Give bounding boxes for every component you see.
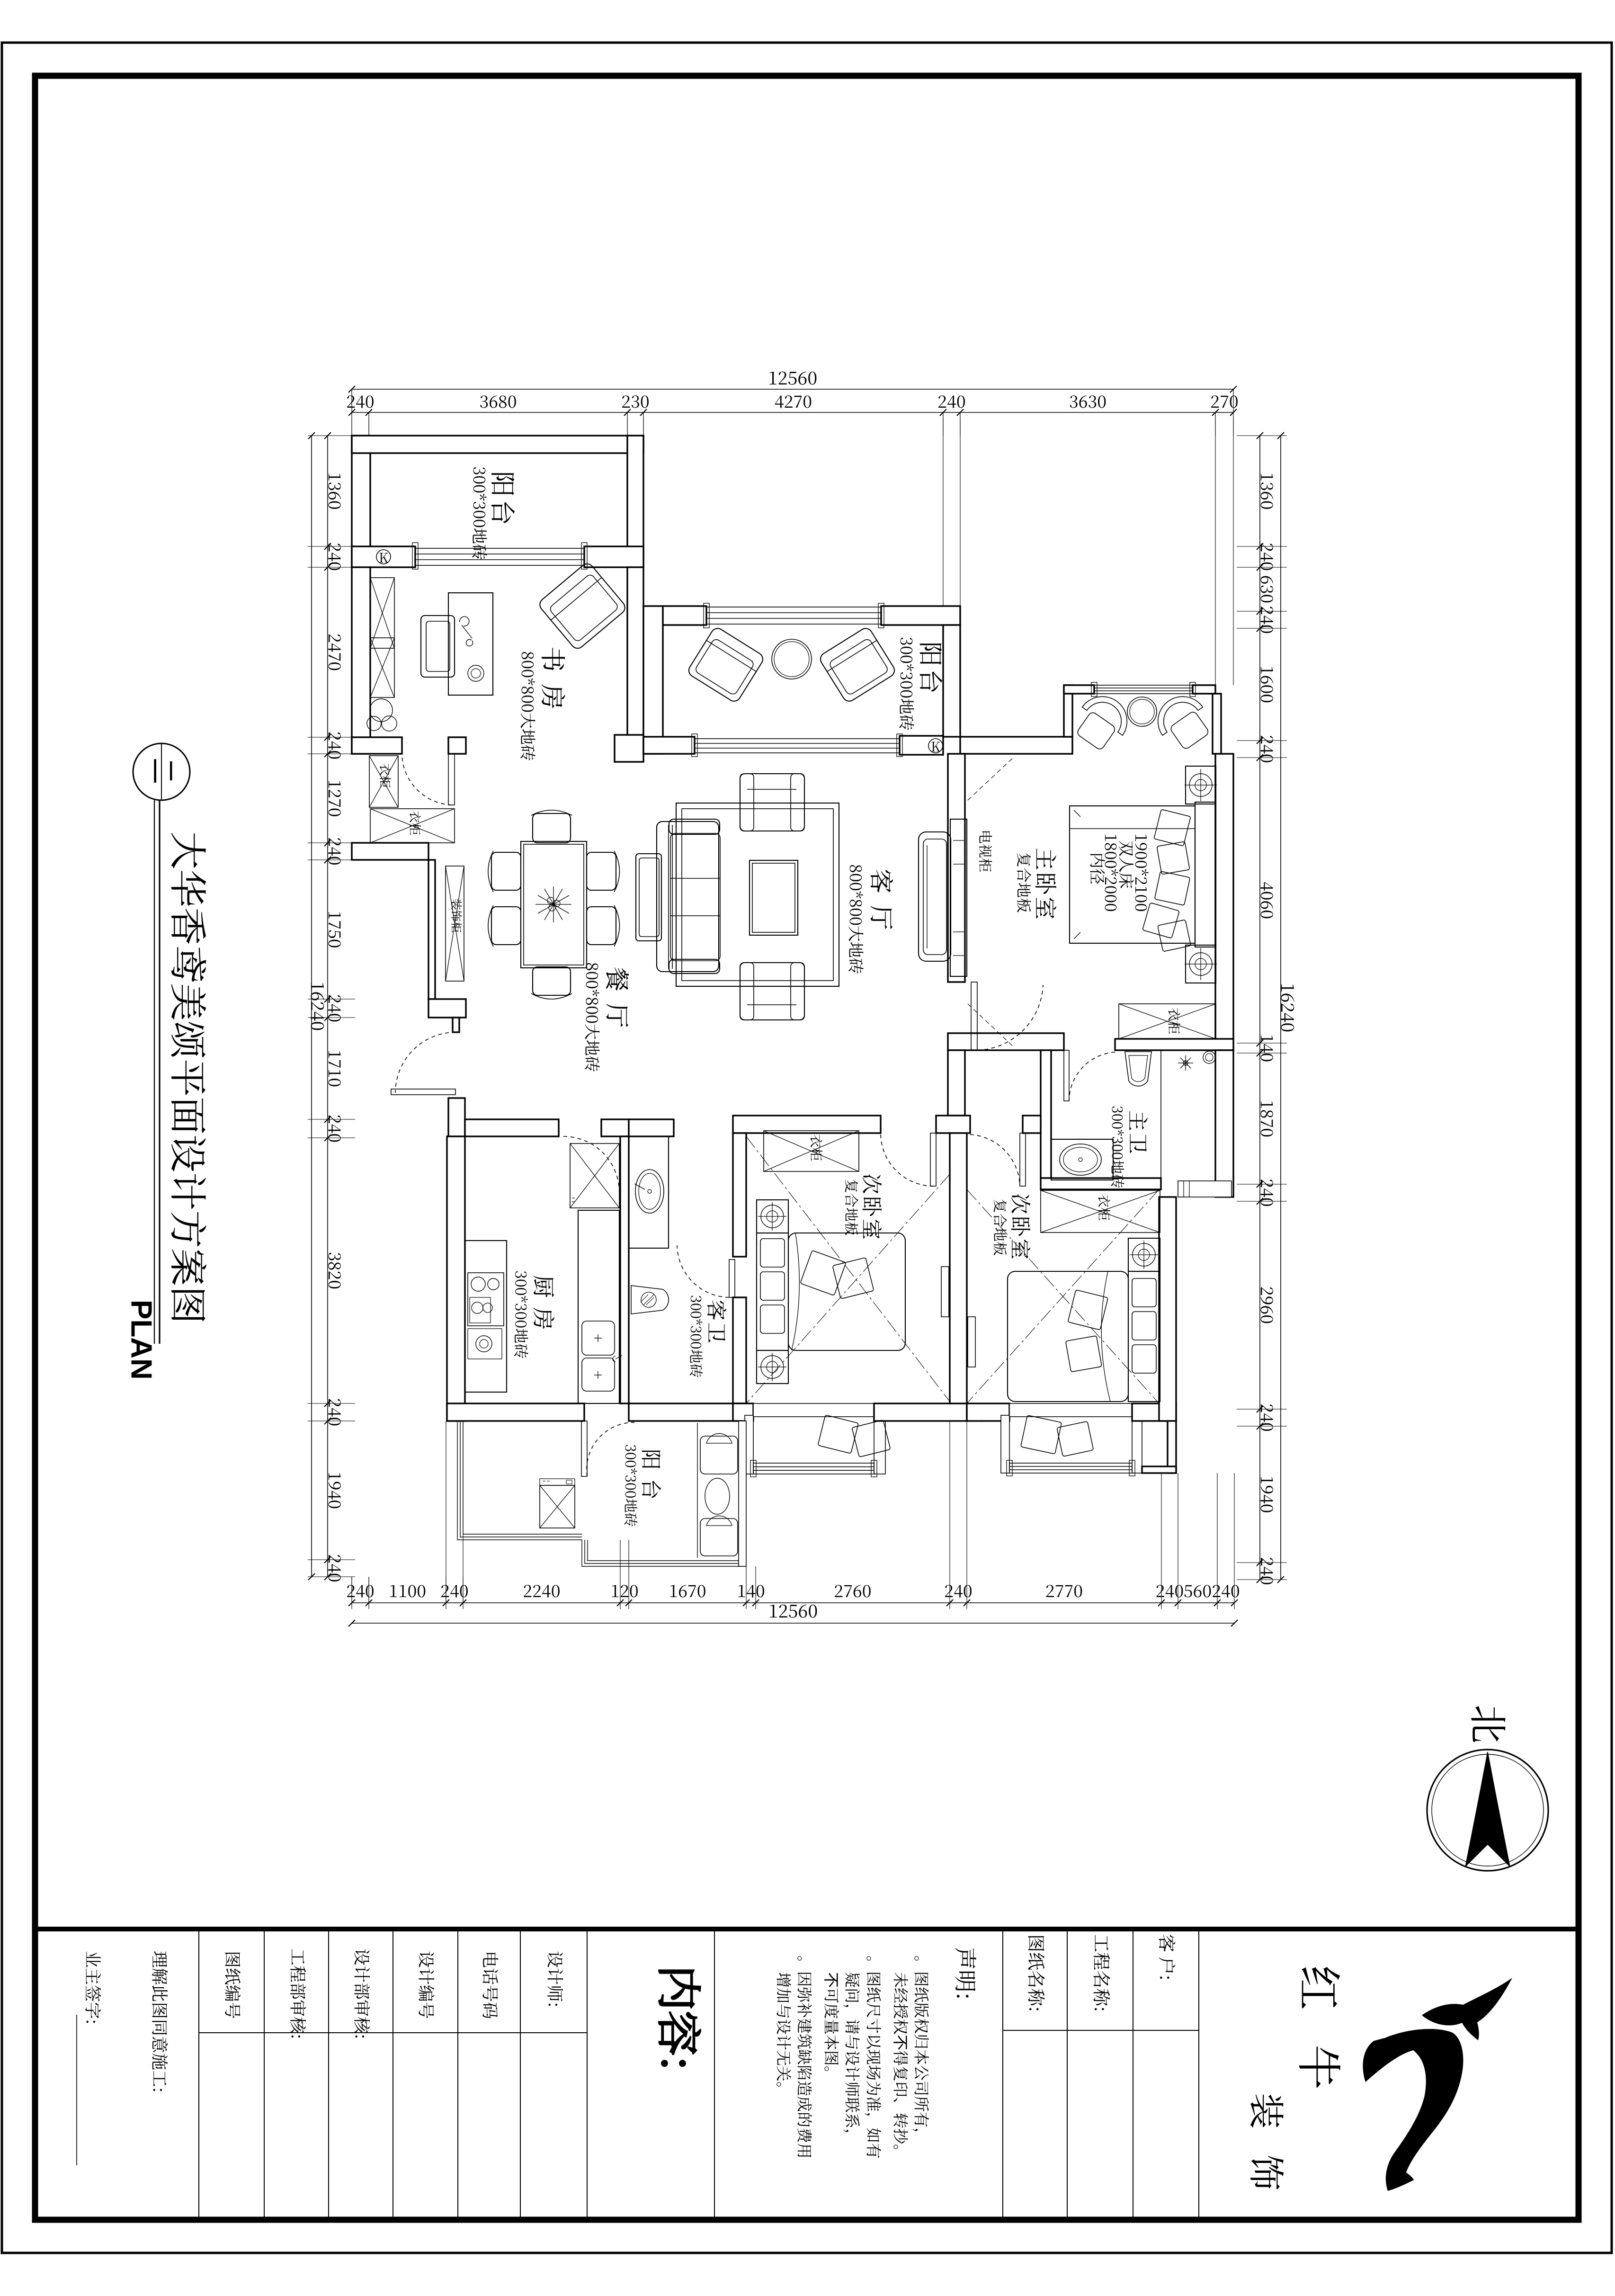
svg-text:疑问，请与设计师联系，: 疑问，请与设计师联系， (842, 1972, 864, 2144)
svg-text:1940: 1940 (1256, 1475, 1280, 1513)
svg-text:复合地板: 复合地板 (1013, 852, 1035, 913)
svg-text:客 厅: 客 厅 (865, 869, 901, 933)
svg-text:240: 240 (323, 1115, 348, 1143)
svg-text:240: 240 (1256, 606, 1280, 634)
svg-text:240: 240 (1156, 1578, 1184, 1602)
svg-text:设计部审核:: 设计部审核: (350, 1948, 375, 2039)
svg-text:图纸名称:: 图纸名称: (1025, 1934, 1051, 2012)
svg-text:餐 厅: 餐 厅 (601, 967, 636, 1031)
svg-text:装: 装 (1243, 2093, 1294, 2129)
svg-text:PLAN: PLAN (125, 1300, 157, 1380)
svg-text:240: 240 (323, 1398, 348, 1426)
svg-text:560: 560 (1184, 1578, 1212, 1602)
svg-text:饰: 饰 (1243, 2154, 1294, 2190)
svg-text:工程名称:: 工程名称: (1090, 1934, 1116, 2012)
svg-text:300*300地砖: 300*300地砖 (621, 1444, 642, 1527)
svg-text:。因弥补建筑缺陷造成的费用: 。因弥补建筑缺陷造成的费用 (794, 1956, 816, 2159)
svg-text:12560: 12560 (768, 1597, 818, 1623)
svg-text:140: 140 (737, 1578, 765, 1602)
svg-text:增加与设计无关。: 增加与设计无关。 (773, 1972, 795, 2097)
svg-text:240: 240 (1256, 735, 1280, 763)
svg-text:装饰柜: 装饰柜 (449, 899, 465, 933)
svg-text:3630: 3630 (1069, 389, 1106, 413)
svg-text:理解此图同意施工:: 理解此图同意施工: (148, 1951, 172, 2093)
svg-text:。图纸版权归本公司所有，: 。图纸版权归本公司所有， (911, 1956, 933, 2143)
svg-text:230: 230 (621, 389, 649, 413)
svg-text:2770: 2770 (1045, 1578, 1083, 1602)
svg-text:240: 240 (346, 1578, 374, 1602)
svg-text:1360: 1360 (1256, 472, 1280, 509)
svg-text:内容:: 内容: (649, 1965, 714, 2071)
svg-text:240: 240 (937, 389, 965, 413)
svg-text:300*300地砖: 300*300地砖 (1108, 1106, 1129, 1188)
svg-text:书 房: 书 房 (536, 646, 572, 713)
svg-text:240: 240 (1256, 1179, 1280, 1206)
svg-text:2470: 2470 (323, 634, 348, 671)
svg-text:1100: 1100 (389, 1578, 426, 1602)
svg-text:240: 240 (1212, 1578, 1240, 1602)
svg-text:12560: 12560 (768, 364, 818, 390)
svg-text:240: 240 (323, 732, 348, 759)
svg-text:K: K (931, 737, 941, 756)
svg-text:300*300地砖: 300*300地砖 (469, 466, 492, 560)
svg-text:复合地板: 复合地板 (842, 1179, 863, 1236)
svg-text:电话号码: 电话号码 (479, 1951, 503, 2019)
svg-text:1750: 1750 (323, 911, 348, 948)
svg-text:300*300地砖: 300*300地砖 (510, 1270, 532, 1358)
svg-text:240: 240 (323, 1554, 348, 1582)
svg-text:K: K (379, 548, 389, 567)
svg-text:1870: 1870 (1256, 1100, 1280, 1137)
svg-text:不可度量本图。: 不可度量本图。 (821, 1972, 843, 2082)
svg-text:240: 240 (944, 1578, 972, 1602)
svg-text:120: 120 (610, 1578, 638, 1602)
svg-text:300*300地砖: 300*300地砖 (896, 637, 919, 731)
svg-text:。图纸尺寸以现场为准，如有: 。图纸尺寸以现场为准，如有 (863, 1956, 885, 2159)
svg-text:1940: 1940 (323, 1472, 348, 1509)
svg-text:140: 140 (1256, 1034, 1280, 1062)
svg-text:3820: 3820 (323, 1252, 348, 1289)
svg-text:3680: 3680 (479, 389, 517, 413)
svg-text:内径: 内径 (1087, 852, 1110, 884)
svg-text:红: 红 (1290, 1965, 1354, 2010)
svg-text:16240: 16240 (1276, 983, 1302, 1033)
svg-text:声明:: 声明: (951, 1947, 983, 2000)
svg-text:240: 240 (323, 837, 348, 865)
svg-text:衣柜: 衣柜 (1095, 1194, 1114, 1221)
svg-text:未经授权不得复印、转抄。: 未经授权不得复印、转抄。 (890, 1972, 912, 2160)
svg-text:设计编号: 设计编号 (415, 1951, 439, 2019)
svg-text:240: 240 (323, 543, 348, 571)
svg-text:业主签字:: 业主签字: (81, 1951, 106, 2025)
svg-text:630: 630 (1256, 575, 1280, 603)
svg-text:1270: 1270 (323, 779, 348, 817)
svg-text:衣柜: 衣柜 (807, 1135, 826, 1161)
svg-text:4060: 4060 (1256, 882, 1280, 919)
svg-text:2960: 2960 (1256, 1286, 1280, 1324)
svg-text:图纸编号: 图纸编号 (221, 1951, 245, 2019)
svg-text:阳台: 阳台 (914, 642, 950, 697)
svg-text:16240: 16240 (306, 982, 332, 1031)
svg-text:1360: 1360 (323, 472, 348, 509)
svg-text:厨 房: 厨 房 (529, 1275, 562, 1332)
svg-text:2760: 2760 (834, 1578, 871, 1602)
svg-text:800*800大地砖: 800*800大地砖 (581, 962, 605, 1072)
svg-text:240: 240 (440, 1578, 468, 1602)
svg-text:大华香鸢美颂平面设计方案图: 大华香鸢美颂平面设计方案图 (163, 831, 218, 1324)
svg-text:1710: 1710 (323, 1050, 348, 1087)
svg-text:衣柜: 衣柜 (407, 811, 424, 835)
svg-text:衣柜: 衣柜 (377, 763, 394, 788)
svg-text:800*800大地砖: 800*800大地砖 (517, 651, 540, 761)
svg-text:牛: 牛 (1290, 2045, 1354, 2090)
svg-text:客 户:: 客 户: (1155, 1934, 1181, 1981)
svg-text:800*800大地砖: 800*800大地砖 (845, 864, 868, 974)
svg-text:240: 240 (1256, 1557, 1280, 1585)
svg-text:1600: 1600 (1256, 666, 1280, 703)
svg-text:衣柜: 衣柜 (1165, 1008, 1184, 1034)
svg-text:300*300地砖: 300*300地砖 (687, 1295, 707, 1378)
svg-text:设计师:: 设计师: (544, 1951, 568, 2008)
svg-text:240: 240 (346, 389, 374, 413)
svg-text:4270: 4270 (775, 389, 812, 413)
svg-text:240: 240 (1256, 1403, 1280, 1431)
svg-text:工程部审核:: 工程部审核: (286, 1948, 311, 2039)
svg-text:2240: 2240 (523, 1578, 560, 1602)
svg-text:270: 270 (1210, 389, 1238, 413)
svg-text:240: 240 (1256, 543, 1280, 571)
svg-text:北: 北 (1463, 1705, 1518, 1743)
svg-text:电视柜: 电视柜 (976, 830, 997, 872)
svg-text:1670: 1670 (669, 1578, 706, 1602)
svg-text:二: 二 (145, 758, 183, 784)
